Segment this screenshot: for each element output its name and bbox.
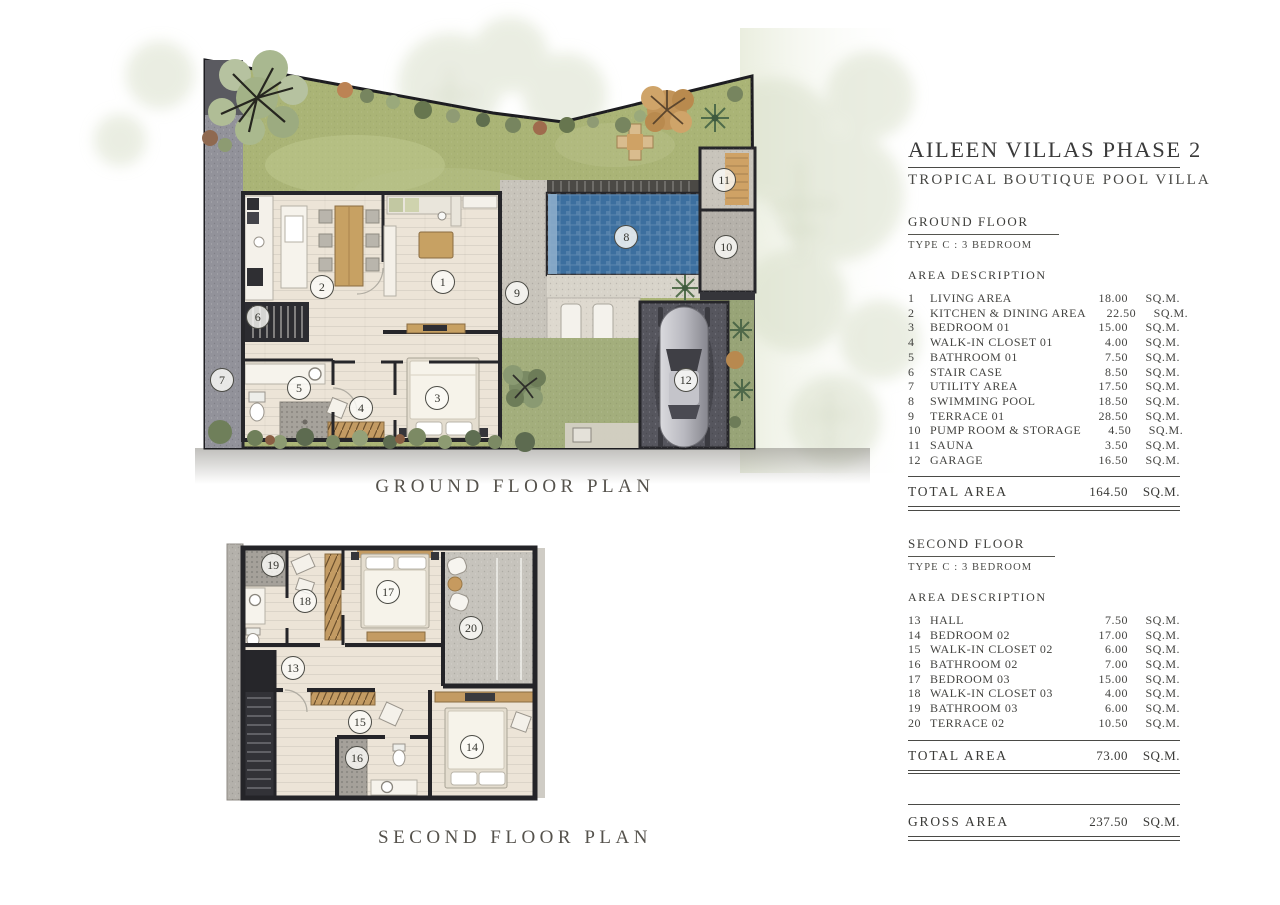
room-area-value: 3.50: [1078, 438, 1128, 453]
room-number-marker: 8: [614, 225, 638, 249]
area-row: 3 BEDROOM 01 15.00 SQ.M.: [908, 320, 1180, 335]
hedge-row: [208, 420, 535, 452]
room-number: 13: [908, 613, 930, 628]
room-area-value: 15.00: [1078, 320, 1128, 335]
room-name: BEDROOM 03: [930, 672, 1078, 687]
room-number: 4: [908, 335, 930, 350]
total-value: 164.50: [1078, 484, 1128, 500]
car-top-view: [654, 304, 714, 450]
room-area-value: 16.50: [1078, 453, 1128, 468]
room-number: 9: [908, 409, 930, 424]
area-row: 17 BEDROOM 03 15.00 SQ.M.: [908, 672, 1180, 687]
area-row: 11 SAUNA 3.50 SQ.M.: [908, 438, 1180, 453]
room-area-value: 6.00: [1078, 701, 1128, 716]
area-row: 12 GARAGE 16.50 SQ.M.: [908, 453, 1180, 468]
type-label-second: TYPE C : 3 BEDROOM: [908, 562, 1180, 573]
room-number: 5: [908, 350, 930, 365]
room-number-marker: 14: [460, 735, 484, 759]
total-label: TOTAL AREA: [908, 484, 1078, 500]
area-row: 15 WALK-IN CLOSET 02 6.00 SQ.M.: [908, 642, 1180, 657]
area-row: 9 TERRACE 01 28.50 SQ.M.: [908, 409, 1180, 424]
area-description-header-ground: AREA DESCRIPTION: [908, 268, 1180, 283]
room-number-marker: 11: [712, 168, 736, 192]
se-tree: [503, 365, 546, 408]
room-area-unit: SQ.M.: [1136, 306, 1188, 321]
room-area-value: 7.50: [1078, 613, 1128, 628]
room-area-unit: SQ.M.: [1128, 613, 1180, 628]
room-number: 12: [908, 453, 930, 468]
info-panel: AILEEN VILLAS PHASE 2 TROPICAL BOUTIQUE …: [908, 137, 1180, 841]
area-row: 13 HALL 7.50 SQ.M.: [908, 613, 1180, 628]
room-area-value: 7.50: [1078, 350, 1128, 365]
room-number: 7: [908, 379, 930, 394]
gross-value: 237.50: [1078, 814, 1128, 830]
room-area-unit: SQ.M.: [1128, 320, 1180, 335]
room-number-marker: 19: [261, 553, 285, 577]
area-row: 5 BATHROOM 01 7.50 SQ.M.: [908, 350, 1180, 365]
room-area-unit: SQ.M.: [1128, 453, 1180, 468]
area-description-header-second: AREA DESCRIPTION: [908, 590, 1180, 605]
room-area-value: 22.50: [1086, 306, 1136, 321]
gross-unit: SQ.M.: [1128, 814, 1180, 830]
room-number-marker: 20: [459, 616, 483, 640]
ground-floor-plan: 1 2 3 4 5 6 7 8 9 10 11 12: [195, 30, 870, 485]
room-number-marker: 15: [348, 710, 372, 734]
room-number: 16: [908, 657, 930, 672]
room-name: WALK-IN CLOSET 02: [930, 642, 1078, 657]
tan-tree: [641, 86, 694, 133]
room-number-marker: 12: [674, 368, 698, 392]
room-name: GARAGE: [930, 453, 1078, 468]
boundary-shrubs: [337, 82, 743, 135]
project-subtitle: TROPICAL BOUTIQUE POOL VILLA: [908, 172, 1180, 189]
room-number-marker: 3: [425, 386, 449, 410]
room-area-value: 10.50: [1078, 716, 1128, 731]
section-title-ground: GROUND FLOOR: [908, 214, 1059, 235]
room-area-unit: SQ.M.: [1128, 701, 1180, 716]
large-tree: [202, 50, 308, 152]
room-area-unit: SQ.M.: [1128, 409, 1180, 424]
room-area-unit: SQ.M.: [1128, 335, 1180, 350]
area-row: 20 TERRACE 02 10.50 SQ.M.: [908, 716, 1180, 731]
room-area-unit: SQ.M.: [1128, 365, 1180, 380]
gross-row: GROSS AREA 237.50 SQ.M.: [908, 807, 1180, 836]
room-name: BEDROOM 01: [930, 320, 1078, 335]
ground-plan-caption: GROUND FLOOR PLAN: [330, 476, 700, 498]
room-number-marker: 5: [287, 376, 311, 400]
room-number: 14: [908, 628, 930, 643]
room-number: 18: [908, 686, 930, 701]
room-area-value: 6.00: [1078, 642, 1128, 657]
room-area-unit: SQ.M.: [1128, 716, 1180, 731]
room-name: SWIMMING POOL: [930, 394, 1078, 409]
room-area-unit: SQ.M.: [1131, 423, 1183, 438]
area-row: 7 UTILITY AREA 17.50 SQ.M.: [908, 379, 1180, 394]
room-area-value: 8.50: [1078, 365, 1128, 380]
total-unit: SQ.M.: [1128, 484, 1180, 500]
gross-label: GROSS AREA: [908, 814, 1078, 830]
room-number: 20: [908, 716, 930, 731]
room-area-value: 17.50: [1078, 379, 1128, 394]
room-number-marker: 18: [293, 589, 317, 613]
palm: [730, 319, 753, 401]
total-label: TOTAL AREA: [908, 748, 1078, 764]
room-area-value: 18.00: [1078, 291, 1128, 306]
room-name: STAIR CASE: [930, 365, 1078, 380]
type-label-ground: TYPE C : 3 BEDROOM: [908, 240, 1180, 251]
room-name: KITCHEN & DINING AREA: [930, 306, 1086, 321]
ground-floor-area-table: 1 LIVING AREA 18.00 SQ.M. 2 KITCHEN & DI…: [908, 291, 1180, 467]
palm: [701, 104, 729, 132]
room-number-marker: 1: [431, 270, 455, 294]
room-name: LIVING AREA: [930, 291, 1078, 306]
room-name: PUMP ROOM & STORAGE: [930, 423, 1081, 438]
room-number: 15: [908, 642, 930, 657]
ground-total-row: TOTAL AREA 164.50 SQ.M.: [908, 476, 1180, 506]
divider: [908, 836, 1180, 841]
palm: [672, 275, 698, 301]
room-area-unit: SQ.M.: [1128, 394, 1180, 409]
area-row: 4 WALK-IN CLOSET 01 4.00 SQ.M.: [908, 335, 1180, 350]
room-area-unit: SQ.M.: [1128, 628, 1180, 643]
room-name: WALK-IN CLOSET 03: [930, 686, 1078, 701]
room-number: 8: [908, 394, 930, 409]
room-area-unit: SQ.M.: [1128, 438, 1180, 453]
room-number: 17: [908, 672, 930, 687]
divider: [908, 506, 1180, 511]
room-number: 2: [908, 306, 930, 321]
area-row: 16 BATHROOM 02 7.00 SQ.M.: [908, 657, 1180, 672]
area-row: 1 LIVING AREA 18.00 SQ.M.: [908, 291, 1180, 306]
room-name: BEDROOM 02: [930, 628, 1078, 643]
room-area-value: 7.00: [1078, 657, 1128, 672]
room-number: 19: [908, 701, 930, 716]
room-number: 3: [908, 320, 930, 335]
room-number-marker: 2: [310, 275, 334, 299]
room-area-value: 15.00: [1078, 672, 1128, 687]
room-area-value: 17.00: [1078, 628, 1128, 643]
area-row: 14 BEDROOM 02 17.00 SQ.M.: [908, 628, 1180, 643]
second-floor-plan: 13 14 15 16 17 18 19 20: [225, 540, 550, 808]
second-total-row: TOTAL AREA 73.00 SQ.M.: [908, 740, 1180, 770]
room-name: SAUNA: [930, 438, 1078, 453]
room-name: BATHROOM 02: [930, 657, 1078, 672]
room-area-unit: SQ.M.: [1128, 657, 1180, 672]
second-floor-area-table: 13 HALL 7.50 SQ.M. 14 BEDROOM 02 17.00 S…: [908, 613, 1180, 731]
second-plan-caption: SECOND FLOOR PLAN: [330, 827, 700, 849]
room-name: BATHROOM 03: [930, 701, 1078, 716]
room-area-value: 4.00: [1078, 686, 1128, 701]
total-value: 73.00: [1078, 748, 1128, 764]
room-name: UTILITY AREA: [930, 379, 1078, 394]
section-title-second: SECOND FLOOR: [908, 536, 1055, 557]
room-number: 6: [908, 365, 930, 380]
room-name: TERRACE 01: [930, 409, 1078, 424]
room-area-unit: SQ.M.: [1128, 291, 1180, 306]
room-number-marker: 4: [349, 396, 373, 420]
area-row: 10 PUMP ROOM & STORAGE 4.50 SQ.M.: [908, 423, 1180, 438]
room-area-unit: SQ.M.: [1128, 672, 1180, 687]
room-number: 10: [908, 423, 930, 438]
ground-floor-section: GROUND FLOOR TYPE C : 3 BEDROOM AREA DES…: [908, 213, 1180, 511]
area-row: 19 BATHROOM 03 6.00 SQ.M.: [908, 701, 1180, 716]
room-name: HALL: [930, 613, 1078, 628]
room-name: WALK-IN CLOSET 01: [930, 335, 1078, 350]
room-area-value: 4.50: [1081, 423, 1131, 438]
room-area-value: 4.00: [1078, 335, 1128, 350]
room-area-unit: SQ.M.: [1128, 350, 1180, 365]
area-row: 8 SWIMMING POOL 18.50 SQ.M.: [908, 394, 1180, 409]
room-number: 1: [908, 291, 930, 306]
gross-area-block: GROSS AREA 237.50 SQ.M.: [908, 804, 1180, 841]
project-title: AILEEN VILLAS PHASE 2: [908, 137, 1180, 168]
room-number-marker: 16: [345, 746, 369, 770]
total-unit: SQ.M.: [1128, 748, 1180, 764]
second-floor-section: SECOND FLOOR TYPE C : 3 BEDROOM AREA DES…: [908, 535, 1180, 774]
room-area-unit: SQ.M.: [1128, 642, 1180, 657]
room-area-value: 28.50: [1078, 409, 1128, 424]
divider: [908, 770, 1180, 775]
room-name: TERRACE 02: [930, 716, 1078, 731]
room-area-unit: SQ.M.: [1128, 379, 1180, 394]
room-number-marker: 17: [376, 580, 400, 604]
room-area-unit: SQ.M.: [1128, 686, 1180, 701]
brochure-page: 1 2 3 4 5 6 7 8 9 10 11 12: [0, 0, 1280, 905]
room-number-marker: 13: [281, 656, 305, 680]
area-row: 18 WALK-IN CLOSET 03 4.00 SQ.M.: [908, 686, 1180, 701]
room-number-marker: 9: [505, 281, 529, 305]
room-area-value: 18.50: [1078, 394, 1128, 409]
room-number-marker: 7: [210, 368, 234, 392]
room-number-marker: 6: [246, 305, 270, 329]
room-number: 11: [908, 438, 930, 453]
area-row: 6 STAIR CASE 8.50 SQ.M.: [908, 365, 1180, 380]
room-number-marker: 10: [714, 235, 738, 259]
area-row: 2 KITCHEN & DINING AREA 22.50 SQ.M.: [908, 306, 1180, 321]
room-name: BATHROOM 01: [930, 350, 1078, 365]
